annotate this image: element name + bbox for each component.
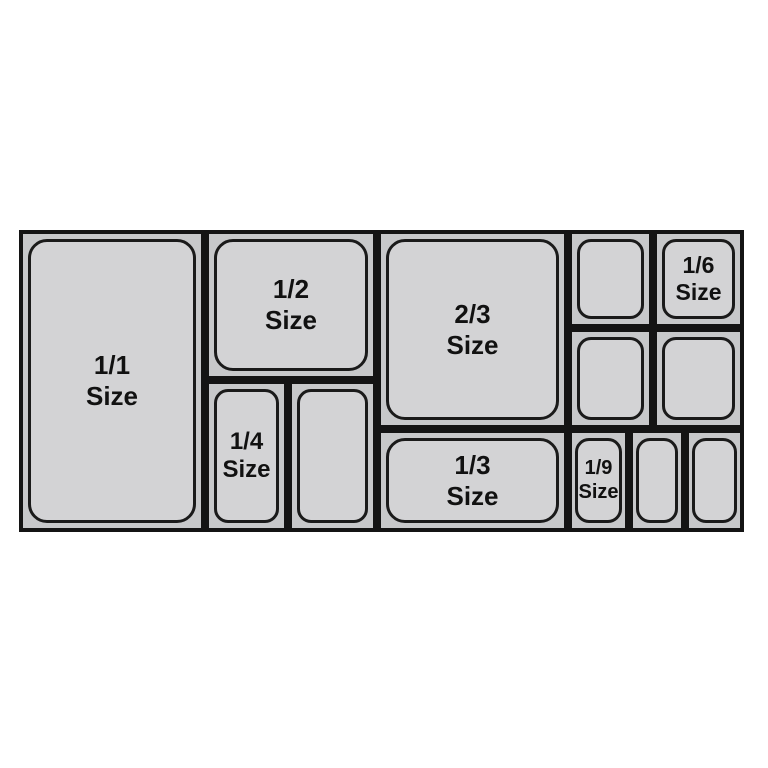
pan-1-1-fraction: 1/1: [86, 350, 138, 381]
pan-quarter-unlabeled: [297, 389, 368, 523]
cell-sixth-unlabeled-top: [568, 230, 653, 328]
pan-1-9: 1/9 Size: [575, 438, 622, 523]
pan-1-4: 1/4 Size: [214, 389, 279, 523]
pan-1-9-label: 1/9 Size: [578, 457, 618, 504]
pan-2-3: 2/3 Size: [386, 239, 559, 420]
pan-1-2-label: 1/2 Size: [265, 274, 317, 335]
pan-size-diagram: 1/1 Size 1/2 Size 1/4 Size: [0, 0, 768, 768]
cell-1-4: 1/4 Size: [205, 380, 288, 532]
cell-1-6: 1/6 Size: [653, 230, 744, 328]
pan-1-6-size-word: Size: [675, 279, 721, 306]
cell-1-3: 1/3 Size: [377, 429, 568, 532]
cell-2-3: 2/3 Size: [377, 230, 568, 429]
pan-1-1-size-word: Size: [86, 381, 138, 412]
pan-1-6-label: 1/6 Size: [675, 252, 721, 306]
pan-1-4-size-word: Size: [222, 456, 270, 484]
pan-1-3-label: 1/3 Size: [446, 450, 498, 511]
pan-1-9-fraction: 1/9: [578, 457, 618, 481]
pan-1-2-fraction: 1/2: [265, 274, 317, 305]
pan-1-2: 1/2 Size: [214, 239, 368, 371]
cell-sixth-unlabeled-mid-right: [653, 328, 744, 429]
pan-sixth-unlabeled-mid-right: [662, 337, 735, 420]
pan-1-4-fraction: 1/4: [222, 428, 270, 456]
pan-1-1-label: 1/1 Size: [86, 350, 138, 411]
pan-1-9-size-word: Size: [578, 481, 618, 505]
cell-1-2: 1/2 Size: [205, 230, 377, 380]
cell-ninth-unlabeled-1: [629, 429, 685, 532]
pan-1-2-size-word: Size: [265, 305, 317, 336]
pan-2-3-fraction: 2/3: [446, 299, 498, 330]
cell-ninth-unlabeled-2: [685, 429, 744, 532]
pan-1-3-fraction: 1/3: [446, 450, 498, 481]
pan-1-3: 1/3 Size: [386, 438, 559, 523]
pan-1-1: 1/1 Size: [28, 239, 196, 523]
pan-1-6: 1/6 Size: [662, 239, 735, 319]
pan-sixth-unlabeled-top: [577, 239, 644, 319]
pan-2-3-size-word: Size: [446, 330, 498, 361]
pan-sixth-unlabeled-mid-left: [577, 337, 644, 420]
pan-ninth-unlabeled-2: [692, 438, 737, 523]
pan-ninth-unlabeled-1: [636, 438, 678, 523]
pan-1-3-size-word: Size: [446, 481, 498, 512]
cell-1-1: 1/1 Size: [19, 230, 205, 532]
pan-1-6-fraction: 1/6: [675, 252, 721, 279]
pan-2-3-label: 2/3 Size: [446, 299, 498, 360]
cell-sixth-unlabeled-mid-left: [568, 328, 653, 429]
cell-quarter-unlabeled: [288, 380, 377, 532]
tray-grid: 1/1 Size 1/2 Size 1/4 Size: [19, 230, 744, 532]
cell-1-9: 1/9 Size: [568, 429, 629, 532]
pan-1-4-label: 1/4 Size: [222, 428, 270, 485]
